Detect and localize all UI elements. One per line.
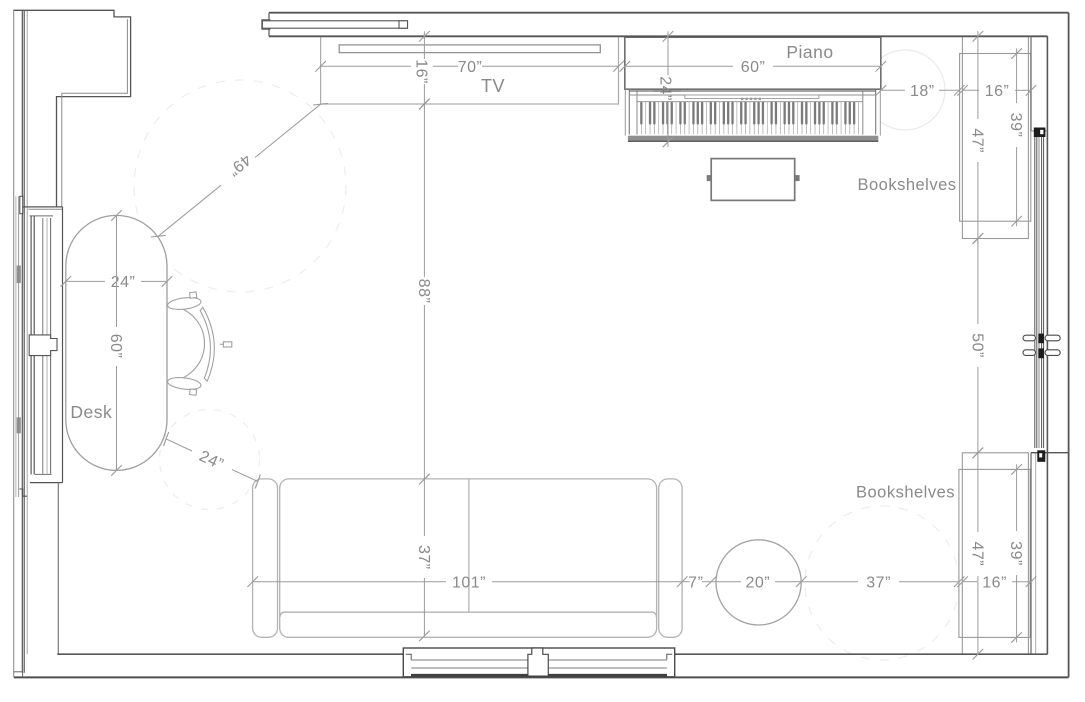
svg-text:37”: 37”	[866, 574, 891, 591]
svg-text:Bookshelves: Bookshelves	[857, 176, 956, 194]
svg-text:Desk: Desk	[70, 402, 112, 422]
svg-text:60”: 60”	[107, 334, 124, 359]
svg-text:37”: 37”	[415, 545, 432, 570]
svg-text:47”: 47”	[968, 541, 985, 566]
svg-text:24”: 24”	[111, 274, 136, 291]
svg-text:7”: 7”	[688, 574, 703, 591]
svg-text:47”: 47”	[968, 128, 985, 153]
svg-text:50”: 50”	[968, 333, 985, 358]
svg-text:16”: 16”	[985, 83, 1010, 100]
svg-text:24”: 24”	[656, 76, 673, 101]
svg-text:Piano: Piano	[786, 42, 833, 62]
svg-text:20”: 20”	[745, 574, 770, 591]
svg-text:16”: 16”	[982, 574, 1007, 591]
svg-text:TV: TV	[481, 76, 505, 96]
svg-text:39”: 39”	[1007, 113, 1024, 138]
svg-text:60”: 60”	[741, 59, 766, 76]
svg-text:16”: 16”	[412, 59, 429, 84]
svg-text:39”: 39”	[1007, 541, 1024, 566]
svg-text:70”: 70”	[458, 59, 483, 76]
svg-text:18”: 18”	[910, 83, 935, 100]
svg-text:88”: 88”	[415, 279, 432, 304]
svg-text:Bookshelves: Bookshelves	[856, 483, 955, 501]
svg-text:101”: 101”	[452, 574, 486, 591]
